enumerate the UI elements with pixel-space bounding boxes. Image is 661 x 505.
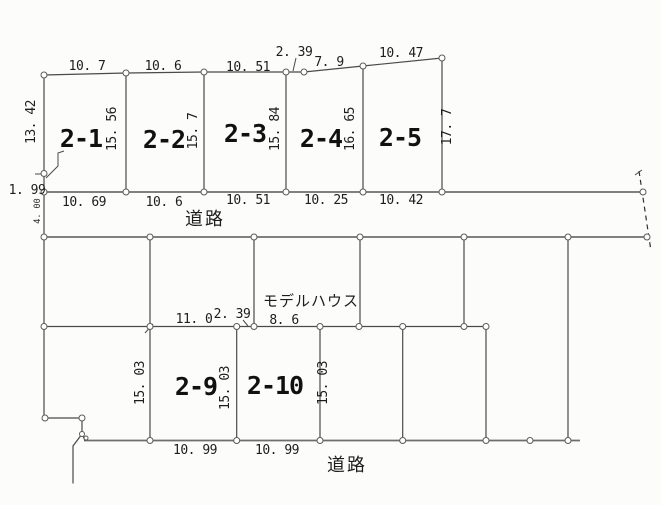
dim-bottom-2-9: 10. 99 — [173, 443, 217, 458]
plot-label-2-9: 2-9 — [175, 372, 217, 401]
dim-top-2-1: 10. 7 — [69, 59, 106, 74]
plot-label-2-2: 2-2 — [143, 125, 185, 154]
dim-top-2-3: 10. 51 — [226, 60, 270, 75]
dim-road-width: 4. 00 — [33, 198, 43, 224]
dim-bottom-2-5: 10. 42 — [379, 193, 423, 208]
top-edge-dimensions: 10. 7 10. 6 10. 51 2. 39 7. 9 10. 47 — [69, 45, 423, 75]
dim-middle-b: 2. 39 — [214, 307, 251, 322]
road-label-top: 道路 — [185, 209, 225, 230]
plot-label-2-5: 2-5 — [379, 123, 421, 152]
dim-top-2-4-b: 7. 9 — [314, 55, 343, 70]
dim-bottom-2-1: 10. 69 — [62, 195, 106, 210]
cadastral-plot-diagram: 10. 7 10. 6 10. 51 2. 39 7. 9 10. 47 13.… — [0, 0, 661, 505]
dim-top-2-5: 10. 47 — [379, 46, 423, 61]
top-row-bottom-dimensions: 10. 69 10. 6 10. 51 10. 25 10. 42 — [62, 193, 423, 210]
plot-label-2-1: 2-1 — [60, 124, 102, 153]
dim-middle-a: 11. 0 — [176, 312, 213, 327]
plot-label-2-4: 2-4 — [300, 124, 342, 153]
bottom-row-bottom-dimensions: 10. 99 10. 99 — [173, 443, 299, 458]
middle-row-dimensions: 11. 0 2. 39 8. 6 モデルハウス — [176, 292, 359, 328]
dim-depth-2-10-right: 15. 03 — [316, 361, 331, 405]
dim-bottom-2-2: 10. 6 — [146, 195, 183, 210]
dim-left-upper: 13. 42 — [24, 100, 39, 144]
dim-bottom-2-10: 10. 99 — [255, 443, 299, 458]
road-label-bottom: 道路 — [327, 455, 367, 476]
dim-top-2-4-a: 2. 39 — [276, 45, 313, 60]
dim-depth-2-3: 15. 84 — [268, 106, 283, 151]
plot-label-2-3: 2-3 — [224, 119, 266, 148]
dim-bottom-2-4: 10. 25 — [304, 193, 348, 208]
dim-depth-2-1: 15. 56 — [105, 107, 120, 151]
middle-block-boundaries — [44, 192, 568, 441]
southwest-corner-jog — [45, 418, 85, 483]
dim-depth-2-4: 16. 65 — [343, 107, 358, 151]
dim-depth-2-9-left: 15. 03 — [133, 361, 148, 405]
plot-label-2-10: 2-10 — [247, 371, 303, 400]
left-edge-dimensions: 13. 42 1. 99 4. 00 — [9, 100, 46, 224]
dim-left-lower: 1. 99 — [9, 183, 46, 198]
dim-top-2-2: 10. 6 — [145, 59, 182, 74]
bottom-row-plot-labels: 2-9 2-10 — [175, 371, 303, 401]
model-house-label: モデルハウス — [263, 292, 359, 310]
dim-depth-2-9-right: 15. 03 — [218, 366, 233, 410]
dim-depth-2-2: 15. 7 — [186, 113, 201, 150]
dim-middle-c: 8. 6 — [269, 313, 298, 328]
diagram-canvas: 10. 7 10. 6 10. 51 2. 39 7. 9 10. 47 13.… — [0, 0, 661, 505]
dim-depth-2-5: 17. 7 — [440, 109, 455, 146]
dim-bottom-2-3: 10. 51 — [226, 193, 270, 208]
